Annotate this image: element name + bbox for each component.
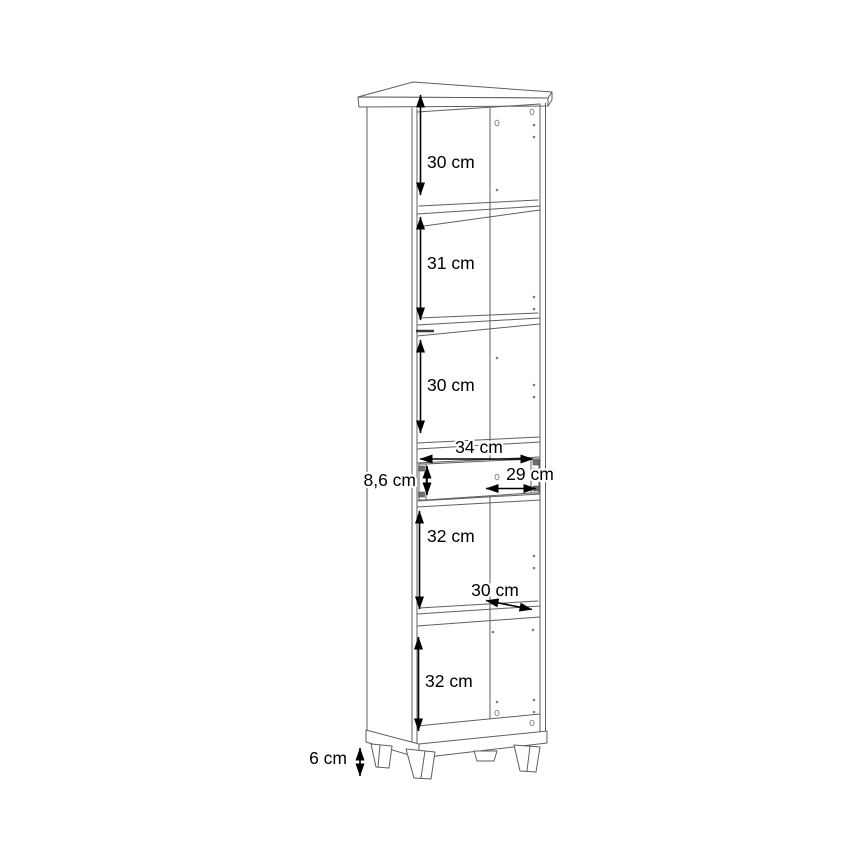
- cabinet-dimension-diagram: 30 cm 31 cm 30 cm 34 cm 8,6 cm 29 cm 32 …: [0, 0, 868, 868]
- dimension-feet-height: 6 cm: [309, 748, 360, 776]
- foot-rear-right: [474, 751, 497, 761]
- top-panel: [358, 82, 552, 107]
- dimension-shelf-depth: 30 cm: [471, 580, 532, 610]
- shelf-1: [417, 200, 540, 227]
- dim-label-shelf-depth: 30 cm: [471, 580, 519, 600]
- dimension-annotations: 30 cm 31 cm 30 cm 34 cm 8,6 cm 29 cm 32 …: [309, 95, 554, 776]
- cabinet-body: [367, 103, 546, 744]
- foot-rear-left: [371, 744, 392, 768]
- dimension-section-3: 30 cm: [421, 340, 475, 433]
- foot-front-left: [406, 749, 435, 779]
- dim-label-drawer-width: 34 cm: [455, 437, 503, 457]
- shelf-2: [416, 313, 540, 336]
- shelf-4-front-bottom: [417, 617, 540, 626]
- dim-label-section-3: 30 cm: [427, 375, 475, 395]
- drawer-left-runner-peg-top: [419, 466, 425, 471]
- dim-label-section-1: 30 cm: [427, 152, 475, 172]
- dimension-section-2: 31 cm: [421, 217, 475, 320]
- drawer-left-runner-peg-bottom: [419, 492, 425, 497]
- shelf-2-back-edge: [419, 313, 538, 318]
- shelf-2-front-top: [417, 318, 540, 325]
- dim-label-section-5: 32 cm: [425, 671, 473, 691]
- diagram-canvas: 30 cm 31 cm 30 cm 34 cm 8,6 cm 29 cm 32 …: [0, 0, 868, 868]
- top-panel-top-face: [358, 82, 552, 98]
- dim-label-drawer-inner-width: 29 cm: [506, 464, 554, 484]
- dimension-section-5: 32 cm: [419, 637, 473, 731]
- shelf-2-front-bottom: [417, 324, 540, 336]
- dim-label-section-4: 32 cm: [427, 526, 475, 546]
- dimension-section-4: 32 cm: [420, 511, 475, 609]
- interior-floor-back-edge: [417, 714, 540, 726]
- drawer-bottom-shelf-line: [417, 500, 540, 507]
- dim-label-feet-height: 6 cm: [309, 748, 347, 768]
- shelf-1-back-edge: [419, 200, 538, 206]
- dim-label-section-2: 31 cm: [427, 253, 475, 273]
- shelf-4: [417, 601, 540, 626]
- dim-label-drawer-front-height: 8,6 cm: [363, 470, 416, 490]
